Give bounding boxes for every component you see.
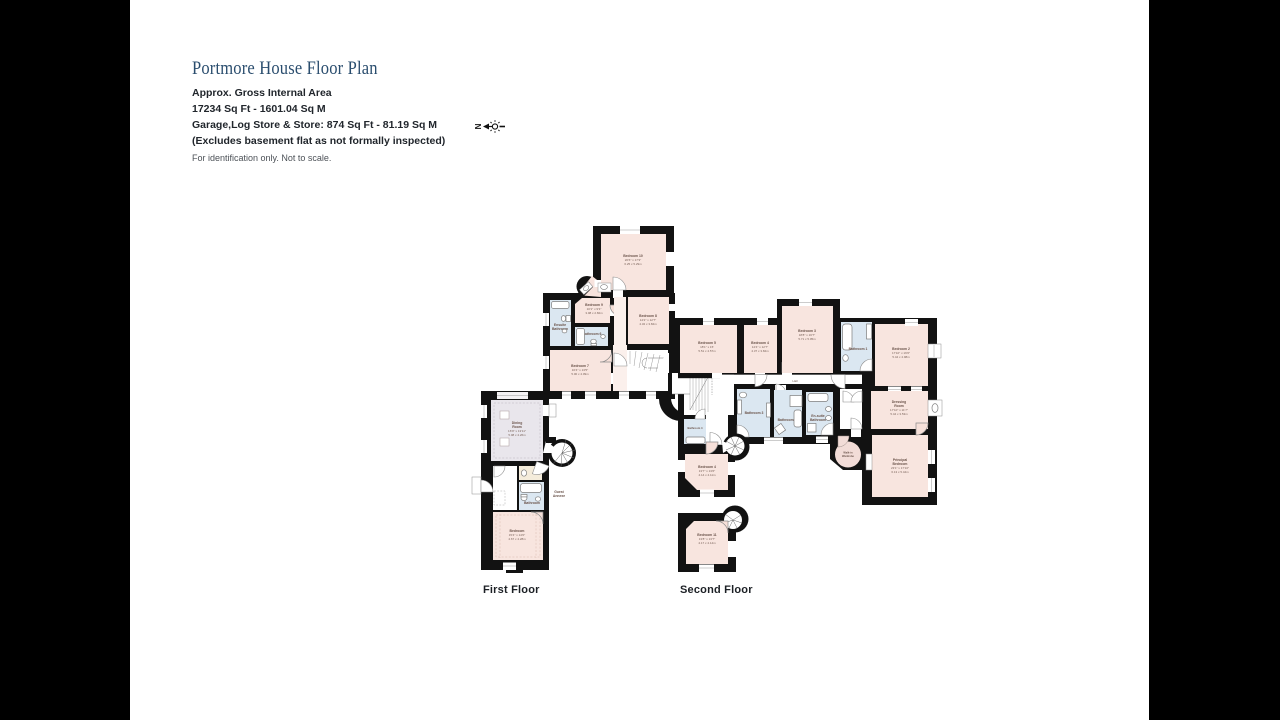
svg-text:4.32 x 3.84m: 4.32 x 3.84m <box>639 322 657 326</box>
svg-text:Walk-in: Walk-in <box>843 451 853 455</box>
svg-text:4.17 x 4.14m: 4.17 x 4.14m <box>698 541 716 545</box>
svg-text:Bathroom 1: Bathroom 1 <box>849 347 868 351</box>
svg-text:Bathroom 3: Bathroom 3 <box>745 411 764 415</box>
svg-text:Bathroom: Bathroom <box>524 501 540 505</box>
svg-text:Bathroom 4: Bathroom 4 <box>688 426 703 430</box>
svg-text:Annexe: Annexe <box>553 494 565 498</box>
svg-text:Bathroom 6: Bathroom 6 <box>583 332 602 336</box>
svg-text:5.08 x 4.26m: 5.08 x 4.26m <box>508 433 526 437</box>
svg-text:Bathroom: Bathroom <box>810 418 826 422</box>
svg-text:5.51 x 4.57m: 5.51 x 4.57m <box>698 349 716 353</box>
svg-text:4.67 x 4.28m: 4.67 x 4.28m <box>508 537 526 541</box>
svg-text:Wardrobe: Wardrobe <box>842 454 855 458</box>
svg-text:6.25 x 5.29m: 6.25 x 5.29m <box>624 262 642 266</box>
svg-text:5.44 x 3.53m: 5.44 x 3.53m <box>890 412 908 416</box>
svg-text:3.08 x 2.82m: 3.08 x 2.82m <box>585 311 603 315</box>
svg-text:5.44 x 4.98m: 5.44 x 4.98m <box>892 355 910 359</box>
svg-text:4.14 x 4.11m: 4.14 x 4.11m <box>698 473 716 477</box>
svg-text:4.37 x 3.84m: 4.37 x 3.84m <box>751 349 769 353</box>
svg-text:6.13 x 5.44m: 6.13 x 5.44m <box>891 470 909 474</box>
svg-text:Hall: Hall <box>792 379 798 383</box>
svg-text:5.71 x 5.05m: 5.71 x 5.05m <box>798 337 816 341</box>
svg-text:5.00 x 4.09m: 5.00 x 4.09m <box>571 372 589 376</box>
svg-text:N: N <box>474 123 483 129</box>
